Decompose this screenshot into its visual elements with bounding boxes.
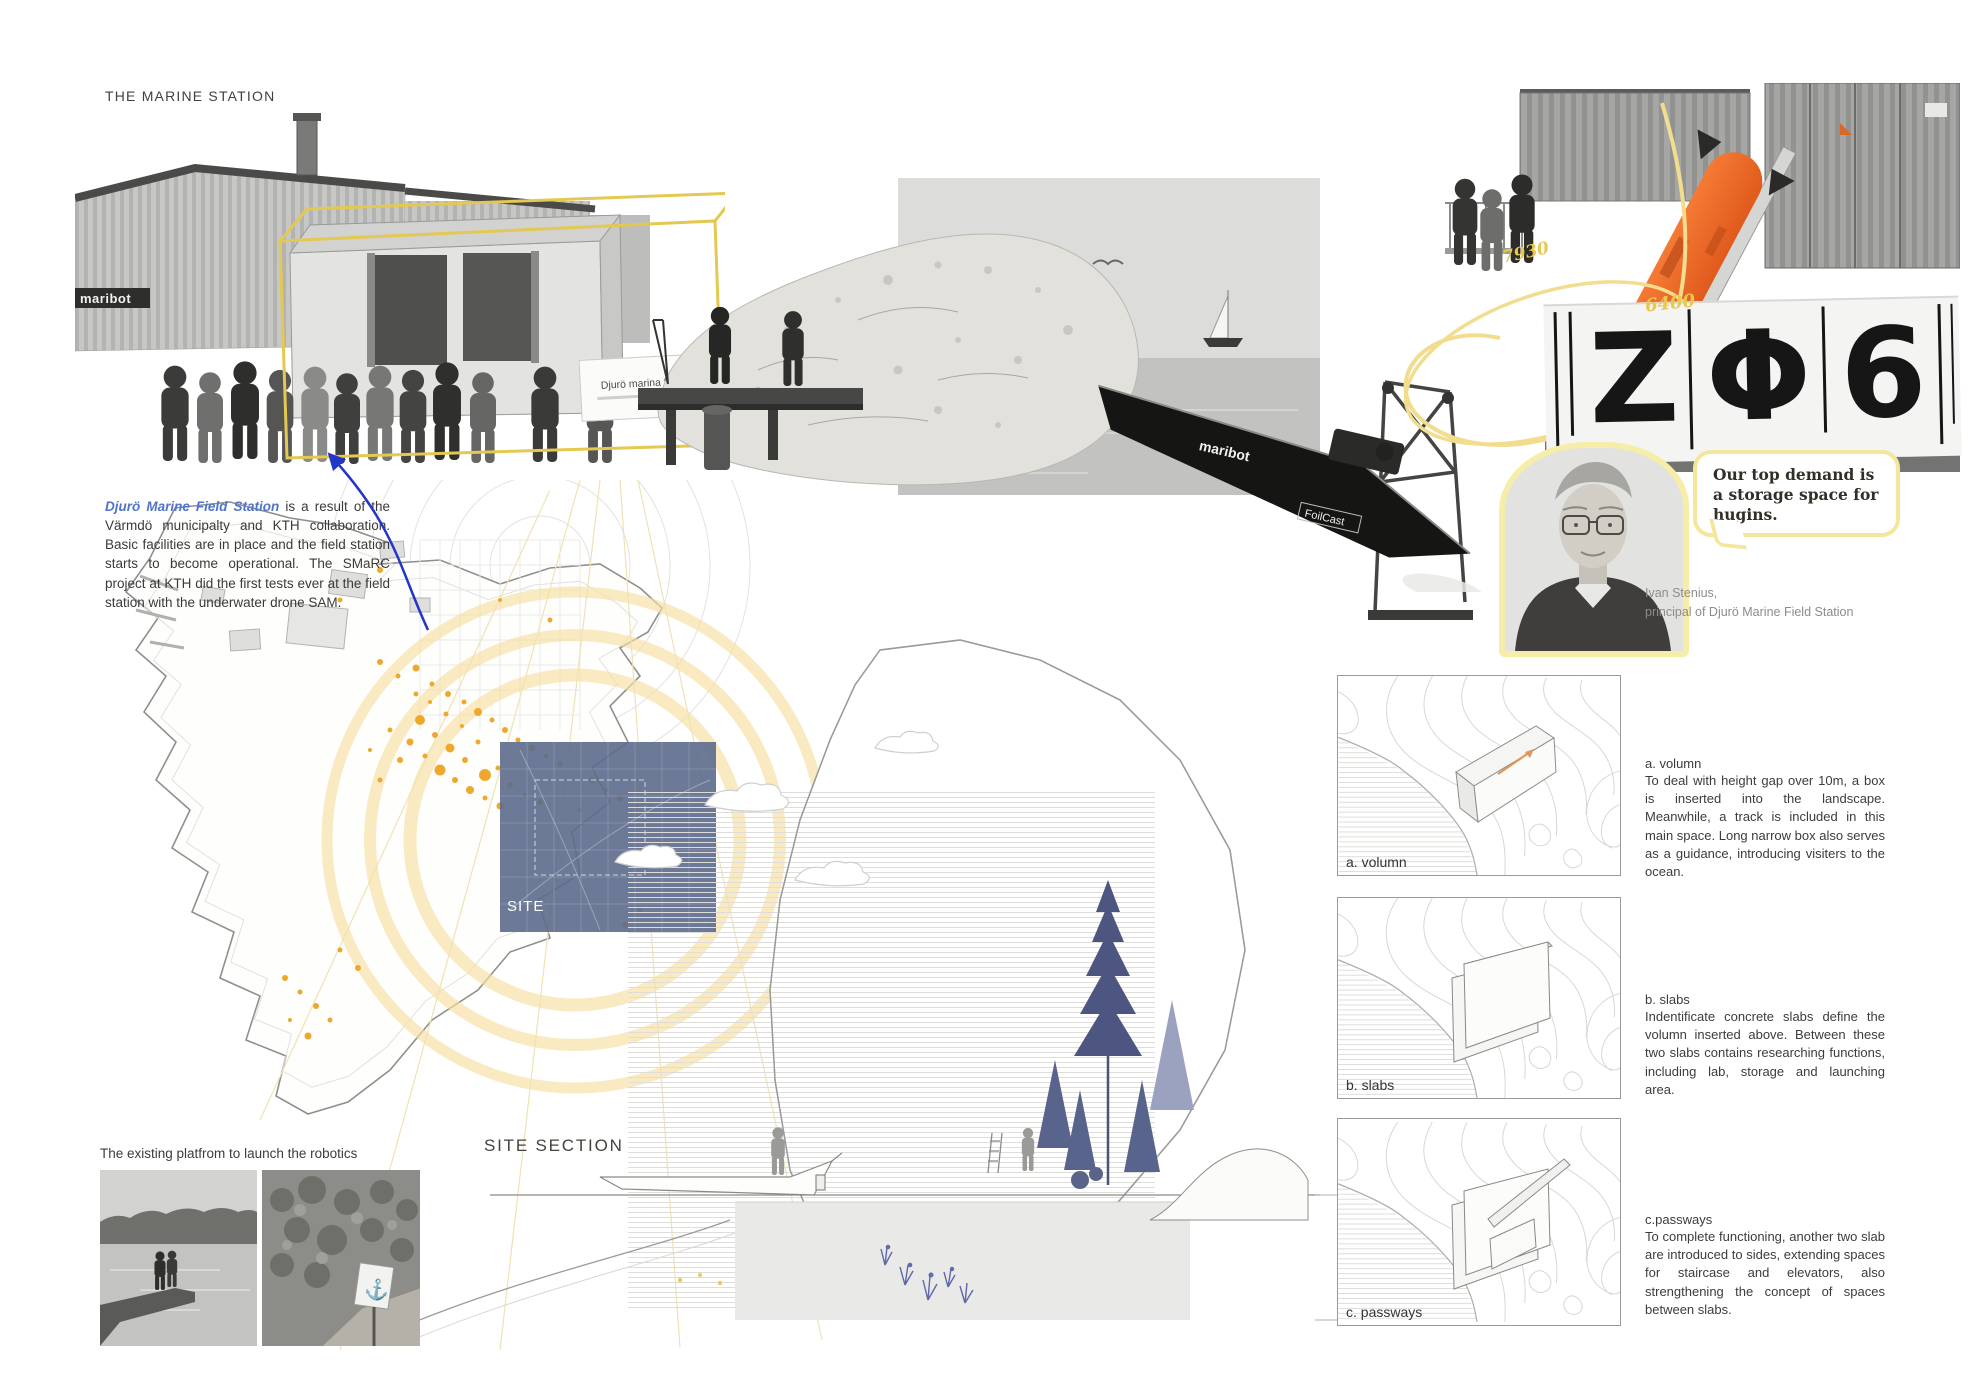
site-section-title: SITE SECTION bbox=[484, 1136, 624, 1156]
diagram-c-label: c. passways bbox=[1346, 1304, 1422, 1320]
diagram-a-volumn: a. volumn bbox=[1337, 675, 1621, 876]
text-c-description: To complete functioning, another two sla… bbox=[1645, 1228, 1885, 1319]
quote-attribution: Ivan Stenius, principal of Djurö Marine … bbox=[1645, 584, 1895, 622]
hull-bar bbox=[1822, 306, 1828, 432]
platform-photo-dock bbox=[100, 1170, 257, 1346]
text-a-description: To deal with height gap over 10m, a box … bbox=[1645, 772, 1885, 881]
platform-photo-anchor-sign: ⚓ bbox=[262, 1170, 420, 1346]
diagram-a-label: a. volumn bbox=[1346, 854, 1407, 870]
section-boat bbox=[600, 1153, 842, 1195]
site-section-drawing bbox=[380, 1125, 1380, 1397]
diagram-b-slabs: b. slabs bbox=[1337, 897, 1621, 1099]
site-square-label: SITE bbox=[507, 898, 544, 915]
diagram-c-passways: c. passways bbox=[1337, 1118, 1621, 1326]
hull-glyph-z: Z bbox=[1588, 310, 1681, 451]
text-b-description: Indentificate concrete slabs define the … bbox=[1645, 1008, 1885, 1099]
hull-bar bbox=[1950, 304, 1955, 424]
text-block-b: b. slabs Indentificate concrete slabs de… bbox=[1645, 992, 1885, 1099]
section-markers bbox=[678, 1273, 722, 1285]
hull-glyph-phi: Φ bbox=[1704, 307, 1812, 448]
attribution-name: Ivan Stenius, bbox=[1645, 584, 1895, 603]
hugin-photo-block: Z Φ 6 7930 6400 bbox=[1340, 83, 1960, 485]
quote-bubble: Our top demand is a storage space for hu… bbox=[1693, 450, 1900, 537]
survey-pole bbox=[653, 320, 668, 384]
ivan-stenius-portrait bbox=[1499, 442, 1689, 657]
diagram-b-label: b. slabs bbox=[1346, 1077, 1394, 1093]
text-a-heading: a. volumn bbox=[1645, 756, 1885, 771]
board-title: THE MARINE STATION bbox=[105, 88, 275, 104]
ship-hull-markings: Z Φ 6 bbox=[1543, 296, 1961, 465]
quote-text: Our top demand is a storage space for hu… bbox=[1713, 465, 1878, 524]
underwater-mass bbox=[735, 1202, 1190, 1320]
hull-glyph-six: 6 bbox=[1839, 304, 1928, 445]
anchor-sign: ⚓ bbox=[354, 1263, 394, 1309]
text-b-heading: b. slabs bbox=[1645, 992, 1885, 1007]
platform-caption: The existing platfrom to launch the robo… bbox=[100, 1146, 357, 1161]
text-c-heading: c.passways bbox=[1645, 1212, 1885, 1227]
attribution-role: principal of Djurö Marine Field Station bbox=[1645, 603, 1895, 622]
seabed-line bbox=[395, 1220, 730, 1330]
hull-bar bbox=[1688, 309, 1694, 449]
building-maribot-logo: maribot bbox=[80, 291, 131, 306]
text-block-a: a. volumn To deal with height gap over 1… bbox=[1645, 756, 1885, 881]
rocky-island-photo bbox=[638, 170, 1143, 492]
hull-bar bbox=[1937, 304, 1943, 444]
hull-bar bbox=[1568, 312, 1574, 436]
hull-bar bbox=[1554, 312, 1559, 452]
blue-arrow bbox=[300, 440, 450, 640]
section-rock bbox=[1150, 1149, 1308, 1220]
anchor-icon: ⚓ bbox=[363, 1276, 391, 1303]
ladder bbox=[988, 1133, 1002, 1173]
presentation-board: SITE bbox=[0, 0, 1980, 1400]
text-block-c: c.passways To complete functioning, anot… bbox=[1645, 1212, 1885, 1319]
level-ticks bbox=[1315, 1195, 1337, 1320]
intro-highlight: Djurö Marine Field Station bbox=[105, 499, 279, 514]
